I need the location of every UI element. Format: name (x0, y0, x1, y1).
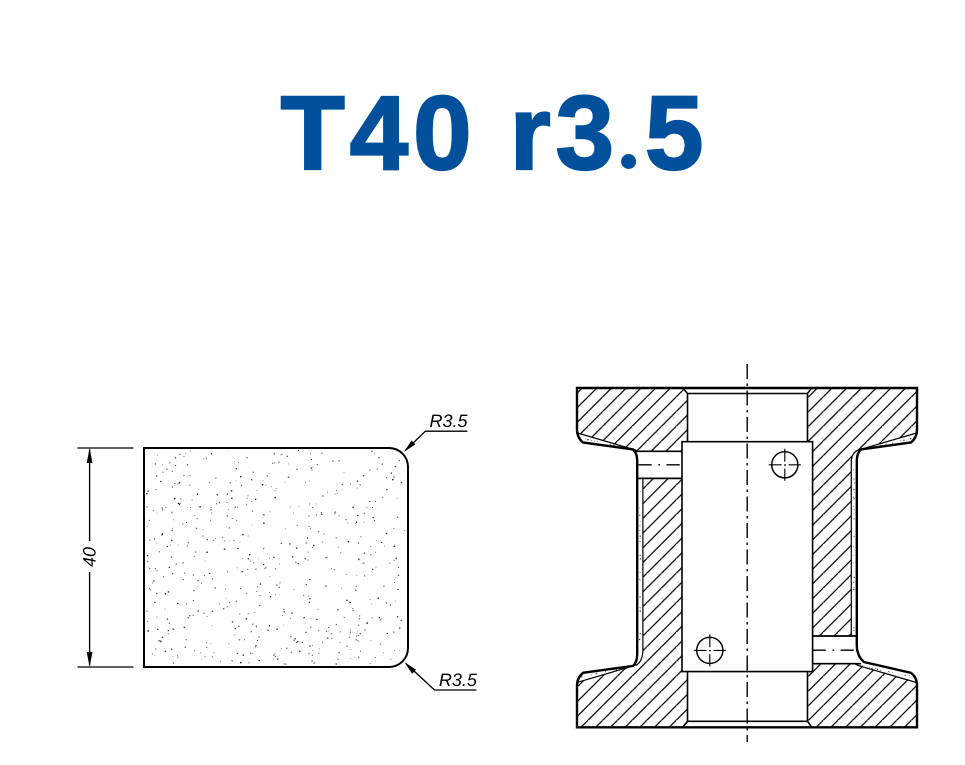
svg-text:R3.5: R3.5 (430, 411, 469, 431)
svg-text:40: 40 (80, 547, 100, 567)
svg-text:R3.5: R3.5 (439, 670, 478, 690)
